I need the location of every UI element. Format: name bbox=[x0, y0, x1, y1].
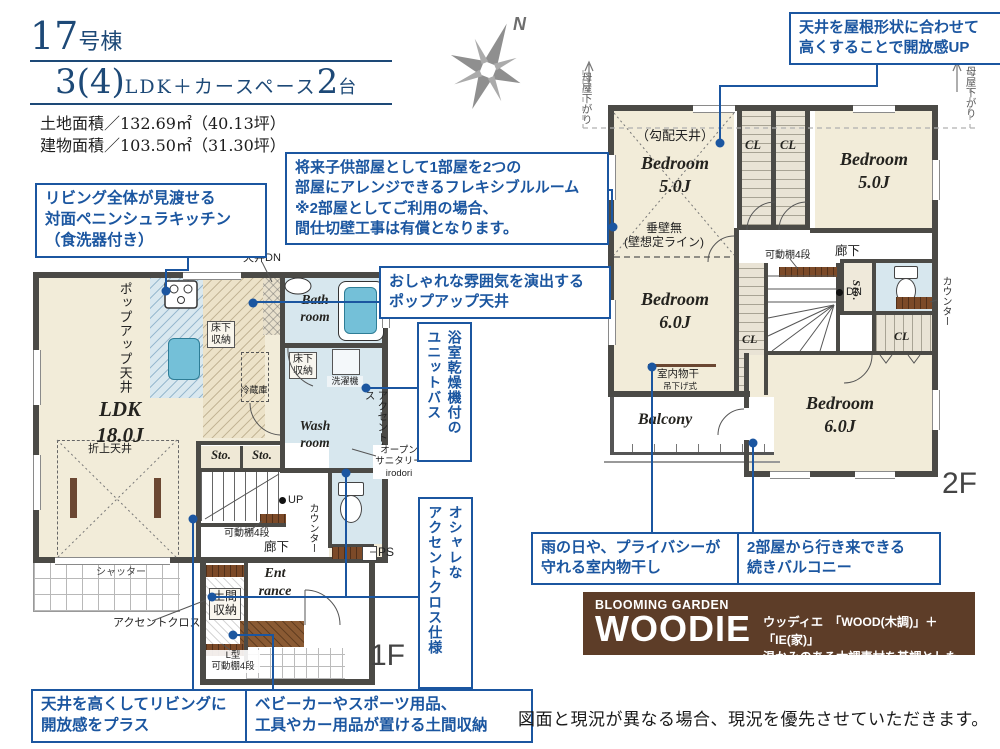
wall bbox=[764, 351, 938, 355]
building-number: 17 bbox=[30, 14, 78, 58]
building-area: 建物面積／103.50㎡（31.30坪） bbox=[40, 132, 286, 156]
wall bbox=[840, 311, 938, 315]
brand-reading: ウッディエ bbox=[763, 615, 823, 629]
shelf4-label: 可動棚4段 bbox=[224, 528, 270, 540]
plan-cars-unit: 台 bbox=[338, 77, 356, 98]
shutter-label: シャッター bbox=[96, 567, 146, 579]
storage-label: Sto. bbox=[244, 448, 280, 464]
drying-rod-icon bbox=[648, 364, 716, 367]
compass-icon: N bbox=[438, 8, 548, 118]
closet-label: CL bbox=[742, 332, 757, 347]
wall bbox=[244, 563, 248, 663]
no-wall-label: 垂壁無 (壁想定ライン) bbox=[612, 222, 716, 250]
counter-label: カウンター bbox=[939, 276, 951, 336]
balcony-label: Balcony bbox=[638, 410, 692, 430]
roof-lowered-label: 母屋下がり bbox=[964, 66, 977, 136]
callout-balcony: 2部屋から行き来できる 続きバルコニー bbox=[737, 532, 941, 585]
wall bbox=[608, 391, 750, 397]
wall bbox=[737, 105, 742, 229]
wall bbox=[872, 263, 876, 355]
shelf-icon bbox=[779, 267, 837, 277]
closet-label: CL bbox=[745, 138, 761, 154]
closet-b bbox=[776, 110, 805, 225]
roof-lowered-label: 母屋下がり bbox=[580, 72, 593, 142]
bathtub-icon bbox=[338, 281, 384, 341]
window bbox=[183, 272, 241, 280]
brand-name: WOODIE bbox=[595, 612, 751, 646]
wall bbox=[196, 468, 285, 472]
wall bbox=[283, 343, 388, 348]
plan-rooms: 3(4) bbox=[55, 62, 125, 102]
divider bbox=[30, 103, 392, 105]
wall bbox=[805, 105, 810, 229]
callout-popup-ceiling: おしゃれな雰囲気を演出する ポップアップ天井 bbox=[379, 266, 611, 319]
wall bbox=[840, 259, 938, 263]
popup-ceiling-label: ポップアップ天井 bbox=[117, 282, 133, 402]
wall bbox=[328, 473, 332, 548]
callout-kitchen: リビング全体が見渡せる 対面ペニンシュラキッチン （食洗器付き） bbox=[35, 183, 267, 258]
up-dot bbox=[279, 497, 286, 504]
wall bbox=[200, 679, 375, 685]
plan-ldk: LDK＋カースペース bbox=[125, 76, 317, 98]
wall bbox=[744, 440, 749, 477]
shutter-opening bbox=[55, 557, 170, 565]
closet-label: CL bbox=[780, 138, 796, 154]
dn-dot bbox=[836, 289, 843, 296]
callout-doma-storage: ベビーカーやスポーツ用品、 工具やカー用品が置ける土間収納 bbox=[245, 689, 533, 743]
balcony-rail bbox=[610, 397, 614, 455]
window bbox=[770, 471, 810, 479]
post bbox=[154, 478, 161, 518]
washroom-label: Wash room bbox=[290, 418, 340, 452]
up-label: UP bbox=[288, 494, 303, 507]
closet-label: CL bbox=[894, 329, 909, 344]
wall bbox=[764, 263, 768, 395]
callout-sloped-ceiling: 天井を屋根形状に合わせて 高くすることで開放感UP bbox=[789, 12, 1000, 65]
window bbox=[33, 455, 41, 510]
callout-flexible-room: 将来子供部屋として1部屋を2つの 部屋にアレンジできるフレキシブルルーム ※2部… bbox=[285, 152, 609, 245]
wall bbox=[810, 228, 938, 233]
bathroom-label: Bath room bbox=[292, 292, 338, 326]
toilet-icon bbox=[340, 495, 362, 523]
doma-storage-label: 土間 収納 bbox=[209, 588, 241, 620]
window bbox=[932, 160, 940, 200]
shelf-icon bbox=[206, 565, 244, 577]
shelf4-label: 可動棚4段 bbox=[765, 250, 811, 262]
kitchen-island-icon bbox=[168, 338, 200, 380]
wall bbox=[196, 441, 285, 445]
bedroom-label: Bedroom 6.0J bbox=[616, 288, 734, 333]
counter-label: カウンター bbox=[306, 503, 318, 561]
wall bbox=[737, 225, 810, 230]
ps-shaft bbox=[362, 546, 377, 561]
post bbox=[70, 478, 77, 518]
wall bbox=[840, 263, 844, 313]
wall bbox=[734, 228, 739, 397]
wall bbox=[33, 272, 39, 563]
window bbox=[855, 471, 895, 479]
hanging-type-label: 吊下げ式 bbox=[663, 381, 697, 391]
building-unit: 号棟 bbox=[78, 30, 122, 55]
l-shelf-label: L型 可動棚4段 bbox=[206, 650, 260, 673]
counter-shelf-icon bbox=[896, 297, 932, 309]
sloped-ceiling-label: （勾配天井） bbox=[636, 128, 714, 144]
counter-shelf-icon bbox=[332, 547, 362, 559]
wall bbox=[771, 105, 776, 229]
wall bbox=[196, 441, 201, 563]
wall bbox=[744, 353, 749, 408]
floorplan-page: 17号棟 3(4)LDK＋カースペース2台 土地面積／132.69㎡（40.13… bbox=[0, 0, 1000, 749]
folded-ceiling-label: 折上天井 bbox=[88, 443, 132, 456]
bedroom-label: Bedroom 6.0J bbox=[760, 392, 920, 437]
brand-logo: BLOOMING GARDEN WOODIE ウッディエ 「WOOD(木調)」＋… bbox=[583, 592, 975, 655]
ldk-label: LDK 18.0J bbox=[75, 396, 165, 449]
floor2-label: 2F bbox=[942, 466, 977, 502]
bedroom-label: Bedroom 5.0J bbox=[818, 148, 930, 193]
floor1-label: 1F bbox=[370, 638, 405, 674]
vestibule bbox=[840, 315, 872, 351]
ps-label: PS bbox=[378, 545, 394, 559]
storage-label: Sto. bbox=[848, 272, 862, 310]
accent-wall-label: アクセントクロス bbox=[113, 617, 200, 630]
callout-high-ceiling: 天井を高くしてリビングに 開放感をプラス bbox=[31, 689, 259, 743]
bedroom-label: Bedroom 5.0J bbox=[616, 152, 734, 197]
entrance-label: Ent rance bbox=[252, 565, 298, 600]
north-label: N bbox=[513, 14, 527, 34]
disclaimer: 図面と現況が異なる場合、現況を優先させていただきます。 bbox=[518, 705, 989, 730]
washer-icon bbox=[332, 349, 360, 375]
brand-tagline: 温かみのある木調素材を基調とした外観デザイン bbox=[763, 649, 963, 684]
underfloor-storage-label: 床下 収納 bbox=[289, 352, 317, 379]
hallway-label: 廊下 bbox=[264, 540, 289, 555]
fridge-label: 冷蔵庫 bbox=[236, 385, 272, 396]
shelf-icon bbox=[260, 514, 286, 523]
balcony-outline bbox=[604, 461, 780, 463]
window bbox=[932, 390, 940, 430]
window bbox=[608, 155, 616, 200]
entrance-wood-floor bbox=[240, 621, 304, 647]
indoor-drying-label: 室内物干 bbox=[657, 368, 699, 381]
hallway-label: 廊下 bbox=[835, 244, 860, 259]
plan-cars: 2 bbox=[317, 62, 339, 102]
wall bbox=[196, 523, 286, 527]
entrance-tile-floor bbox=[246, 648, 345, 679]
underfloor-storage-label: 床下 収納 bbox=[207, 321, 235, 348]
window bbox=[853, 105, 895, 113]
land-area: 土地面積／132.69㎡（40.13坪） bbox=[40, 110, 286, 134]
plan-type: 3(4)LDK＋カースペース2台 bbox=[55, 62, 356, 102]
closet-a bbox=[742, 110, 771, 225]
storage-label: Sto. bbox=[203, 448, 239, 464]
wall bbox=[608, 105, 614, 397]
window bbox=[693, 105, 735, 113]
washer-label: 洗濯機 bbox=[327, 376, 363, 387]
callout-unit-bath: 浴室乾燥機付の ユニットバス bbox=[417, 322, 472, 462]
callout-accent-cross: オシャレな アクセントクロス仕様 bbox=[418, 497, 473, 689]
window bbox=[33, 350, 41, 405]
page-title: 17号棟 bbox=[30, 14, 122, 58]
balcony-rail bbox=[610, 452, 774, 455]
callout-indoor-drying: 雨の日や、プライバシーが 守れる室内物干し bbox=[531, 532, 749, 585]
toilet-icon bbox=[338, 482, 364, 496]
